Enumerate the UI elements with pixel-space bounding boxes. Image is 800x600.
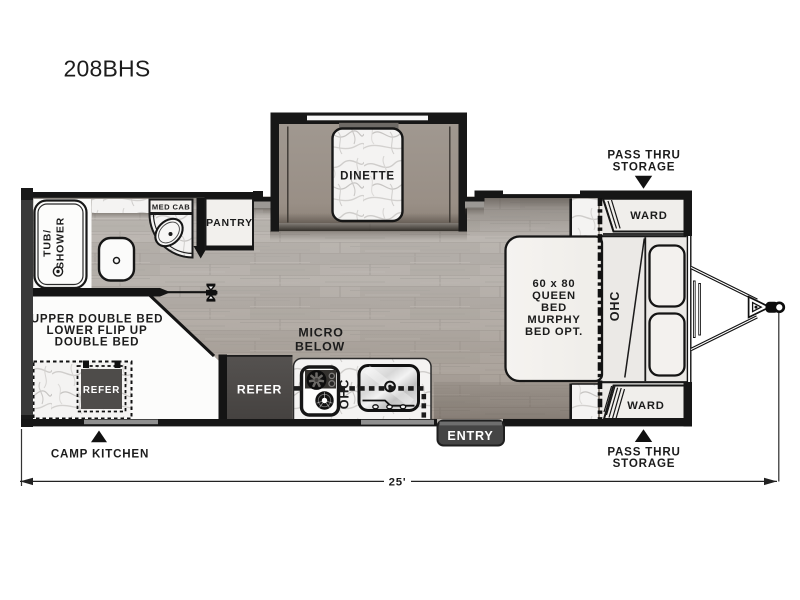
svg-text:REFER: REFER [83, 385, 120, 396]
svg-text:MICRO: MICRO [298, 326, 343, 340]
svg-text:DINETTE: DINETTE [340, 171, 395, 183]
svg-text:QUEEN: QUEEN [532, 290, 576, 302]
svg-text:OHC: OHC [338, 379, 352, 409]
svg-text:WARD: WARD [627, 400, 664, 412]
svg-text:STORAGE: STORAGE [613, 457, 676, 470]
svg-text:BED OPT.: BED OPT. [525, 326, 583, 338]
svg-text:TUB/: TUB/ [42, 229, 54, 257]
svg-text:SHOWER: SHOWER [55, 217, 67, 269]
svg-text:BELOW: BELOW [295, 340, 345, 354]
svg-text:REFER: REFER [237, 383, 282, 397]
svg-text:60 x 80: 60 x 80 [533, 278, 576, 290]
svg-text:MURPHY: MURPHY [527, 314, 580, 326]
svg-text:DOUBLE BED: DOUBLE BED [55, 336, 140, 349]
svg-text:208BHS: 208BHS [64, 56, 151, 82]
svg-text:CAMP KITCHEN: CAMP KITCHEN [51, 448, 149, 461]
svg-text:BED: BED [541, 302, 567, 314]
svg-text:MED CAB: MED CAB [152, 203, 190, 212]
svg-text:STORAGE: STORAGE [613, 161, 676, 174]
svg-text:25': 25' [389, 477, 407, 489]
svg-text:ENTRY: ENTRY [447, 429, 493, 443]
svg-text:PANTRY: PANTRY [206, 217, 253, 229]
svg-text:OHC: OHC [608, 291, 622, 321]
svg-text:WARD: WARD [630, 210, 667, 222]
